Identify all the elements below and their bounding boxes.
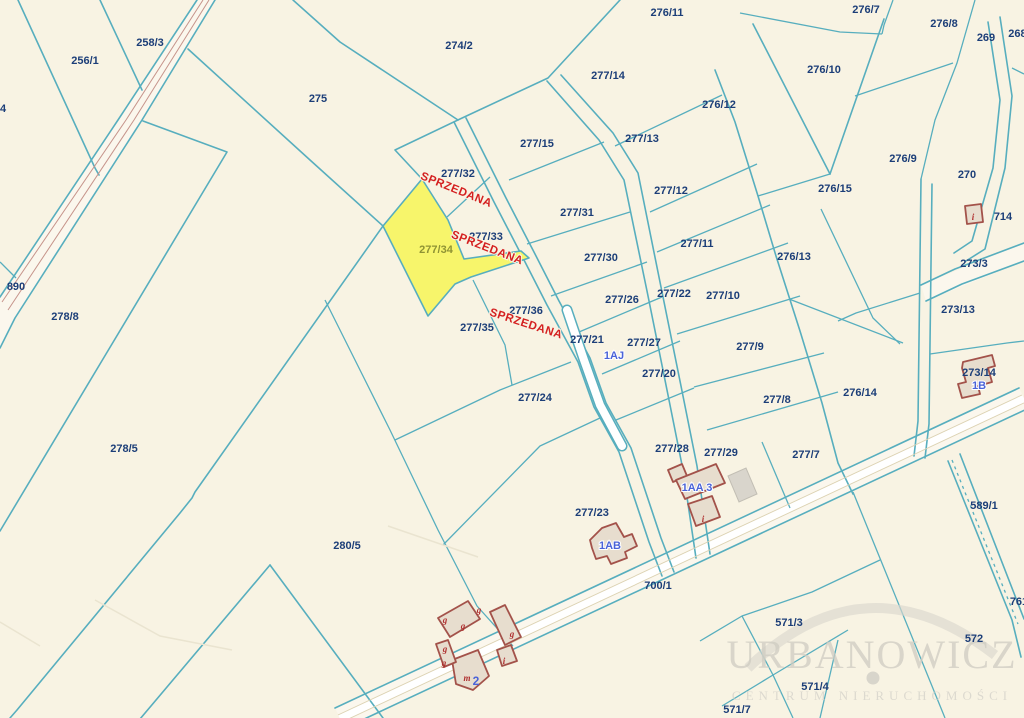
building-mark: g: [442, 644, 448, 654]
parcel-label: 278/8: [51, 311, 79, 323]
parcel-label: 277/23: [575, 507, 609, 519]
parcel-label: 277/13: [625, 133, 659, 145]
address-label: 1B: [972, 380, 986, 392]
parcel-label: 277/8: [763, 394, 791, 406]
address-label: 1AJ: [604, 350, 624, 362]
parcel-label: 277/32: [441, 168, 475, 180]
parcel-label: 277/20: [642, 368, 676, 380]
parcel-label: 277/27: [627, 337, 661, 349]
parcel-label: 277/11: [680, 238, 713, 250]
building-mark: g: [441, 658, 447, 668]
parcel-label: 270: [958, 169, 976, 181]
parcel-label: 276/10: [807, 64, 841, 76]
parcel-label: 256/1: [71, 55, 99, 67]
parcel-label: 276/14: [843, 387, 878, 399]
parcel-label: 277/24: [518, 392, 553, 404]
parcel-label: 273/14: [962, 367, 997, 379]
parcel-label: 273/3: [960, 258, 988, 270]
parcel-label: 571/3: [775, 617, 803, 629]
parcel-label: 276/8: [930, 18, 958, 30]
parcel-label: 4: [0, 103, 7, 115]
address-label: 1AA 3: [682, 482, 713, 494]
parcel-label: 277/28: [655, 443, 689, 455]
cadastral-map-svg[interactable]: URBANOWICZ CENTRUM NIERUCHOMOŚCI 256/1 2…: [0, 0, 1024, 718]
paved-strip: [567, 310, 622, 446]
address-label: 1AB: [599, 540, 621, 552]
parcel-label: 277/29: [704, 447, 738, 459]
parcel-label: 571/7: [723, 704, 751, 716]
parcel-label: 276/11: [650, 7, 683, 19]
building-mark: g: [442, 615, 448, 625]
parcel-label: 276/9: [889, 153, 917, 165]
parcel-label: 258/3: [136, 37, 164, 49]
road-273-3: [921, 243, 1024, 301]
parcel-label: 277/35: [460, 322, 494, 334]
parcel-label: 277/14: [591, 70, 626, 82]
building-mark: g: [460, 621, 466, 631]
parcel-label: 277/7: [792, 449, 820, 461]
parcel-label: 714: [994, 211, 1013, 223]
building-gray: [728, 468, 757, 502]
parcel-label: 277/31: [560, 207, 594, 219]
parcel-label: 890: [7, 281, 25, 293]
parcel-label: 274/2: [445, 40, 473, 52]
parcel-label: 700/1: [644, 580, 672, 592]
parcel-label: 276/15: [818, 183, 852, 195]
parcel-label: 280/5: [333, 540, 361, 552]
parcel-label-sold: 277/34: [419, 244, 454, 256]
parcel-label: 276/12: [702, 99, 736, 111]
parcel-label: 277/30: [584, 252, 618, 264]
parcel-label: 277/21: [570, 334, 604, 346]
parcel-label: 277/10: [706, 290, 740, 302]
parcel-label: 278/5: [110, 443, 138, 455]
parcel-label: 275: [309, 93, 327, 105]
building-mark: g: [509, 629, 515, 639]
parcel-label: 268/: [1008, 28, 1024, 40]
parcel-label: 277/26: [605, 294, 639, 306]
watermark: URBANOWICZ CENTRUM NIERUCHOMOŚCI: [726, 608, 1017, 703]
parcel-label: 589/1: [970, 500, 998, 512]
parcel-label: 277/12: [654, 185, 688, 197]
parcel-label: 761: [1010, 596, 1024, 608]
parcel-label: 277/22: [657, 288, 691, 300]
cadastral-map[interactable]: URBANOWICZ CENTRUM NIERUCHOMOŚCI 256/1 2…: [0, 0, 1024, 718]
building-mark: m: [463, 673, 470, 683]
parcel-label: 572: [965, 633, 983, 645]
parcel-label: 277/9: [736, 341, 764, 353]
parcel-label: 277/15: [520, 138, 554, 150]
parcel-label: 269: [977, 32, 995, 44]
building-mark: 2: [473, 674, 480, 688]
parcel-label: 276/7: [852, 4, 880, 16]
watermark-subtitle: CENTRUM NIERUCHOMOŚCI: [732, 688, 1012, 703]
parcel-label: 276/13: [777, 251, 811, 263]
building-mark: g: [476, 605, 482, 615]
parcel-label: 571/4: [801, 681, 829, 693]
parcel-label: 273/13: [941, 304, 975, 316]
